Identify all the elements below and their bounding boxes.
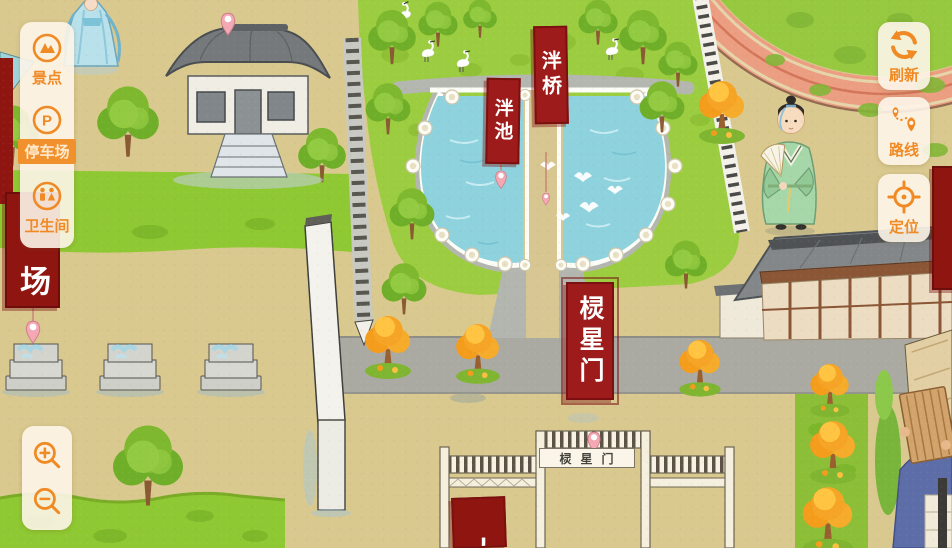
sidebar-item-parking[interactable]: P 停车场 [18, 104, 76, 164]
locate-icon [887, 180, 921, 214]
route-icon [887, 103, 921, 137]
zoom-controls [22, 426, 72, 530]
zoom-out-icon [30, 484, 64, 518]
zoom-out-button[interactable] [30, 484, 64, 518]
sidebar-item-label: 景点 [32, 67, 62, 88]
banner-pan-bridge[interactable]: 泮桥 [533, 26, 569, 125]
refresh-button[interactable]: 刷新 [878, 22, 930, 90]
banner-bottom-partial[interactable]: 大 [451, 496, 507, 548]
refresh-icon [887, 28, 921, 62]
zoom-in-button[interactable] [30, 438, 64, 472]
sidebar-item-label: 停车场 [18, 139, 76, 164]
scenic-icon [31, 32, 63, 64]
zoom-in-icon [30, 438, 64, 472]
route-label: 路线 [889, 139, 919, 160]
left-toolbar: 景点 P 停车场 卫生间 [20, 22, 74, 248]
banner-pan-pond[interactable]: 泮池 [485, 78, 520, 165]
svg-text:P: P [42, 113, 52, 130]
stone-steles [2, 344, 265, 397]
locate-button[interactable]: 定位 [878, 174, 930, 242]
map-illustration[interactable] [0, 0, 952, 548]
route-button[interactable]: 路线 [878, 97, 930, 165]
restroom-icon [31, 180, 63, 212]
locate-label: 定位 [889, 216, 919, 237]
map-app: 泮桥 泮池 棂星门 场 大 棂星门 景点 P 停车场 卫生间 刷新 [0, 0, 952, 548]
sidebar-item-label: 卫生间 [24, 215, 69, 236]
sidebar-item-restroom[interactable]: 卫生间 [24, 180, 69, 236]
banner-lingxing-gate[interactable]: 棂星门 [566, 282, 614, 400]
gate-plaque: 棂星门 [539, 448, 635, 468]
banner-right-edge [932, 166, 952, 290]
refresh-label: 刷新 [889, 64, 919, 85]
sidebar-item-scenic[interactable]: 景点 [31, 32, 63, 88]
parking-icon: P [31, 104, 63, 136]
